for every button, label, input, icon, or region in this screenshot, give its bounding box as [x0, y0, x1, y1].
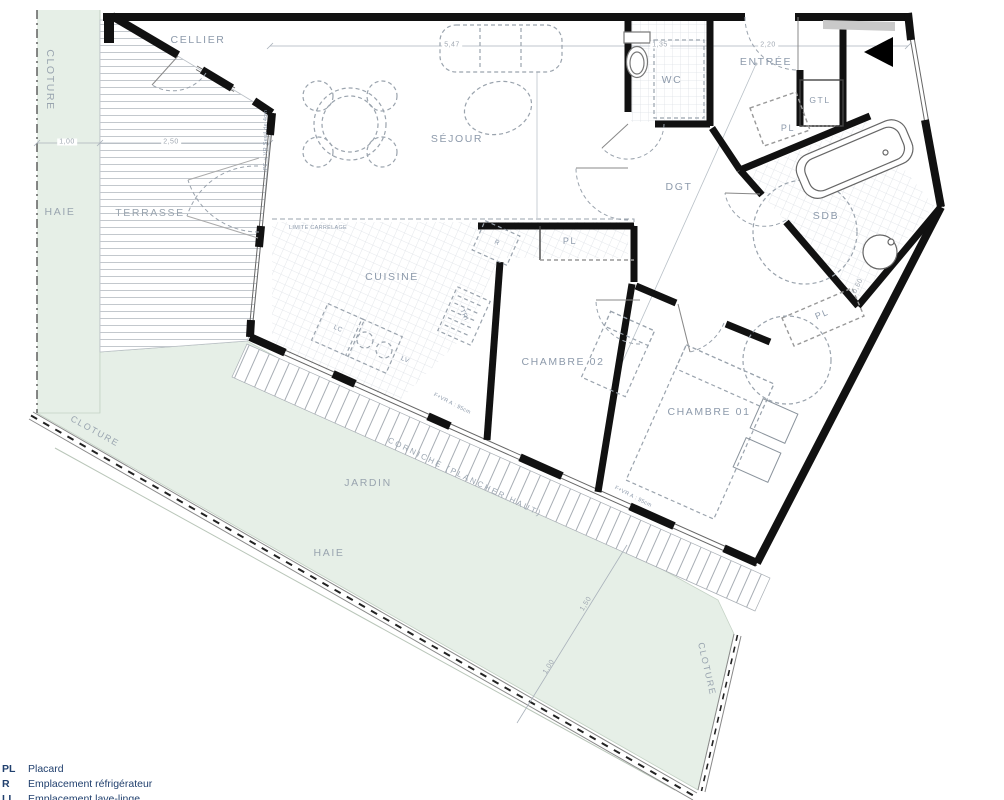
legend-label-refrigerateur: Emplacement réfrigérateur — [28, 778, 152, 790]
legend-label-lave-linge: Emplacement lave-linge — [28, 793, 140, 800]
room-label-sdb: SDB — [813, 210, 839, 222]
dim-sejour-width: 5,47 — [442, 42, 462, 49]
legend-code-pl: PL — [2, 763, 28, 775]
dim-terrasse-width: 2,50 — [161, 139, 181, 146]
legend-label-placard: Placard — [28, 763, 64, 775]
exterior-label-cloture-left: CLOTURE — [44, 49, 56, 110]
legend-code-r: R — [2, 778, 28, 790]
closet-label-pl-entree: PL — [781, 123, 795, 133]
annotation-limite-carrelage: LIMITE CARRELAGE — [289, 225, 347, 231]
room-label-chambre01: CHAMBRE 01 — [667, 406, 750, 418]
room-label-cellier: CELLIER — [171, 34, 226, 46]
terrace-area — [100, 20, 272, 352]
legend: PL Placard R Emplacement réfrigérateur L… — [2, 761, 152, 800]
entry-step — [823, 20, 895, 31]
room-label-chambre02: CHAMBRE 02 — [521, 356, 604, 368]
legend-code-ll: LL — [2, 793, 28, 800]
legend-row-placard: PL Placard — [2, 761, 152, 776]
room-label-dgt: DGT — [666, 181, 693, 193]
closet-label-pl-hall: PL — [563, 236, 577, 246]
dim-wc-width: 1,35 — [650, 42, 670, 49]
north-arrow-icon — [864, 37, 893, 67]
legend-row-refrigerateur: R Emplacement réfrigérateur — [2, 776, 152, 791]
floor-plan: CELLIER SÉJOUR WC ENTRÉE GTL PL DGT SDB … — [0, 0, 1004, 800]
dim-entree-width: 2,20 — [758, 42, 778, 49]
room-label-entree: ENTRÉE — [740, 56, 792, 68]
room-label-sejour: SÉJOUR — [431, 133, 483, 145]
dim-haie-width: 1,00 — [57, 139, 77, 146]
room-label-gtl: GTL — [809, 95, 830, 105]
annotation-pf-vr-terrace: PF + VR Seuil de 4cm — [263, 110, 269, 170]
legend-row-lave-linge: LL Emplacement lave-linge — [2, 791, 152, 800]
floor-plan-drawing — [0, 0, 1004, 800]
room-label-wc: WC — [662, 74, 683, 86]
exterior-label-terrasse: TERRASSE — [115, 207, 184, 219]
room-label-cuisine: CUISINE — [365, 271, 419, 283]
exterior-label-jardin: JARDIN — [344, 477, 392, 489]
exterior-label-haie-bottom: HAIE — [314, 547, 345, 559]
exterior-label-haie-left: HAIE — [45, 206, 76, 218]
